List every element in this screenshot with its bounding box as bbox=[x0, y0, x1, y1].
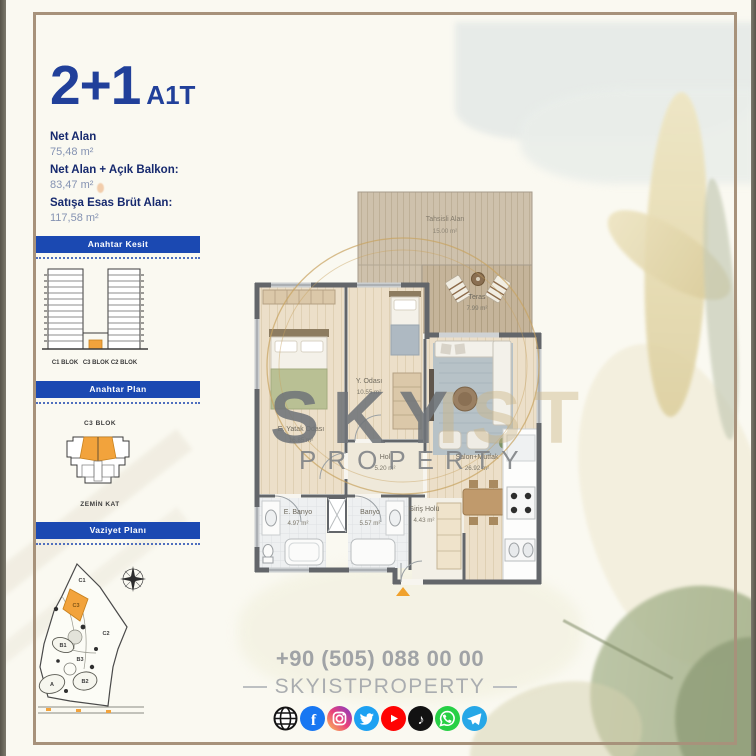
area-label: Satışa Esas Brüt Alan: bbox=[50, 195, 200, 211]
room-area-label: 26.92 m² bbox=[465, 465, 489, 472]
tiktok-icon[interactable]: ♪ bbox=[408, 706, 433, 731]
stove bbox=[507, 487, 535, 519]
utility-shaft bbox=[328, 498, 346, 532]
room-area-label: 15.00 m² bbox=[433, 228, 457, 235]
footer: +90 (505) 088 00 00 SKYISTPROPERTY f bbox=[243, 646, 517, 731]
dashed-divider bbox=[36, 257, 200, 259]
room-area-label: 5.57 m² bbox=[360, 520, 381, 527]
kitchen-counter bbox=[503, 429, 539, 581]
highlighted-unit-section bbox=[89, 340, 102, 349]
area-summary: Net Alan 75,48 m² Net Alan + Açık Balkon… bbox=[50, 129, 200, 226]
site-block-label: C3 bbox=[72, 603, 79, 609]
divider-line bbox=[493, 686, 517, 688]
dashed-divider bbox=[36, 402, 200, 404]
key-plan-block-label: C3 BLOK bbox=[36, 420, 164, 427]
room-label: Giriş Holü bbox=[409, 506, 440, 513]
website-icon[interactable] bbox=[273, 706, 298, 731]
entry-closet bbox=[437, 503, 461, 569]
section-block-label: C2 BLOK bbox=[111, 360, 138, 366]
facebook-icon[interactable]: f bbox=[300, 706, 325, 731]
leaf-blade-sage bbox=[697, 177, 745, 440]
room-area-label: 16.85 m² bbox=[289, 437, 313, 444]
tv-unit bbox=[429, 369, 434, 421]
room-label: Hol bbox=[380, 454, 391, 461]
key-plan-diagram bbox=[36, 431, 200, 493]
toilet bbox=[263, 545, 273, 558]
site-block-label: B1 bbox=[59, 643, 66, 649]
telegram-icon[interactable] bbox=[462, 706, 487, 731]
room-label: Banyo bbox=[360, 509, 380, 516]
room-area-label: 5.20 m² bbox=[375, 465, 396, 472]
watercolor-wash-top-right bbox=[455, 22, 756, 140]
twitter-icon[interactable] bbox=[354, 706, 379, 731]
sofa-chaise bbox=[493, 341, 511, 425]
brand-handle-row: SKYISTPROPERTY bbox=[243, 675, 517, 699]
leaf-pale-large bbox=[545, 322, 756, 687]
site-block-label: C1 bbox=[78, 578, 85, 584]
armchair bbox=[467, 431, 489, 449]
room-label: Y. Odası bbox=[356, 378, 382, 385]
area-label: Net Alan bbox=[50, 129, 200, 145]
room-label: E. Yatak Odası bbox=[278, 426, 324, 433]
floor-plan: Tahsisli Alan 15.00 m² Teras 7.99 m² Y. … bbox=[253, 191, 560, 598]
leaf-bottom-right-1 bbox=[549, 544, 756, 756]
banner-anahtar-plan: Anahtar Plan bbox=[36, 381, 200, 398]
svg-text:♪: ♪ bbox=[418, 711, 425, 727]
dining-table bbox=[463, 489, 505, 515]
unit-code: A1T bbox=[146, 80, 195, 110]
sidebar: 2+1A1T Net Alan 75,48 m² Net Alan + Açık… bbox=[36, 58, 200, 723]
room-label: Teras bbox=[468, 294, 486, 301]
dashed-divider bbox=[36, 543, 200, 545]
room-area-label: 7.99 m² bbox=[467, 305, 488, 312]
phone-number: +90 (505) 088 00 00 bbox=[243, 646, 517, 672]
area-value: 117,58 m² bbox=[50, 211, 200, 226]
brand-handle: SKYISTPROPERTY bbox=[275, 675, 486, 699]
unit-title: 2+1A1T bbox=[50, 58, 200, 113]
room-label: Tahsisli Alan bbox=[426, 216, 465, 223]
youtube-icon[interactable] bbox=[381, 706, 406, 731]
divider-line bbox=[243, 686, 267, 688]
section-block-label: C3 BLOK bbox=[83, 360, 110, 366]
svg-text:f: f bbox=[311, 712, 317, 729]
leaf-blade-tall bbox=[639, 91, 712, 418]
room-area-label: 4.43 m² bbox=[414, 517, 435, 524]
fridge bbox=[507, 435, 535, 461]
room-area-label: 4.97 m² bbox=[288, 520, 309, 527]
site-block-label: B3 bbox=[76, 657, 83, 663]
leaf-stem bbox=[563, 619, 674, 680]
area-value: 83,47 m² bbox=[50, 178, 200, 193]
brochure-page: 2+1A1T Net Alan 75,48 m² Net Alan + Açık… bbox=[0, 0, 756, 756]
watercolor-wash-top-right-2 bbox=[520, 88, 756, 184]
bathtub bbox=[351, 539, 395, 565]
compass-rose bbox=[120, 566, 146, 592]
site-block-label: A bbox=[50, 682, 54, 688]
site-block-label: C2 bbox=[102, 631, 109, 637]
entrance-marker bbox=[396, 587, 410, 596]
site-block-label: B2 bbox=[81, 679, 88, 685]
whatsapp-icon[interactable] bbox=[435, 706, 460, 731]
section-block-label: C1 BLOK bbox=[52, 360, 79, 366]
unit-type: 2+1 bbox=[50, 54, 140, 116]
photo-edge-right bbox=[751, 0, 756, 756]
banner-vaziyet-plani: Vaziyet Planı bbox=[36, 522, 200, 539]
social-icons-row: f bbox=[243, 706, 517, 731]
leaf-bottom-right-2 bbox=[647, 609, 756, 756]
area-value: 75,48 m² bbox=[50, 145, 200, 160]
bed-headboard bbox=[269, 329, 329, 337]
area-label: Net Alan + Açık Balkon: bbox=[50, 162, 200, 178]
leaf-blade-crossing bbox=[595, 194, 744, 317]
photo-edge-left bbox=[0, 0, 6, 756]
room-area-label: 10.55 m² bbox=[357, 389, 381, 396]
instagram-icon[interactable] bbox=[327, 706, 352, 731]
room-label: E. Banyo bbox=[284, 509, 313, 516]
key-section-diagram: C1 BLOK C3 BLOK C2 BLOK bbox=[36, 263, 200, 371]
key-plan-floor-label: ZEMİN KAT bbox=[36, 501, 164, 508]
banner-anahtar-kesit: Anahtar Kesit bbox=[36, 236, 200, 253]
site-plan-diagram: C1 C3 C2 B1 B3 A B2 bbox=[36, 549, 200, 723]
room-label: Salon+Mutfak bbox=[456, 454, 499, 461]
armchair bbox=[439, 431, 461, 449]
